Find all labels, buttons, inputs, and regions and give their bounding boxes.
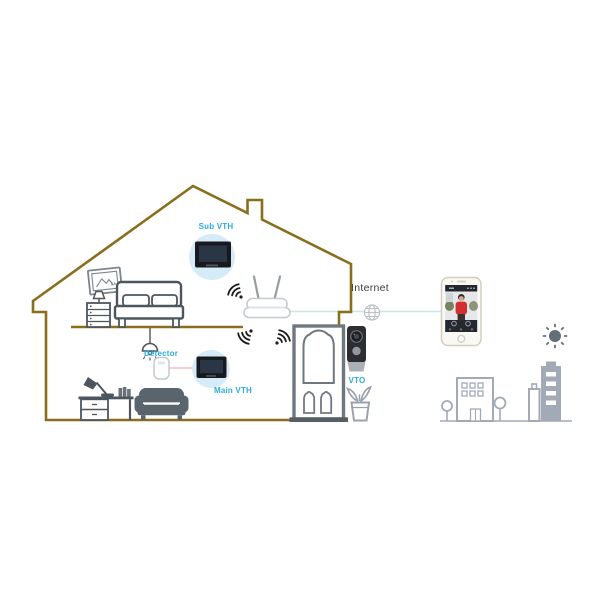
internet-label: Internet xyxy=(351,282,421,294)
door-icon xyxy=(290,326,349,422)
plant-icon xyxy=(348,387,371,421)
wifi-signal-icon xyxy=(238,329,252,343)
vto-label: VTO xyxy=(327,376,387,385)
detector-icon xyxy=(154,358,169,380)
bed-icon xyxy=(115,282,183,327)
sun-icon xyxy=(544,325,567,348)
desk-icon xyxy=(79,377,134,420)
vto-door-station-icon xyxy=(347,326,366,372)
main-vth-label: Main VTH xyxy=(203,386,263,395)
wifi-signal-icon xyxy=(228,284,242,298)
video-foliage xyxy=(469,301,478,311)
sofa-icon xyxy=(135,388,189,420)
nightstand-icon xyxy=(87,292,110,328)
smartphone-icon xyxy=(442,278,482,346)
city-buildings-icon xyxy=(440,362,572,422)
sub-vth-indoor-monitor-icon xyxy=(189,234,235,280)
sub-vth-label: Sub VTH xyxy=(186,222,246,231)
smart-home-diagram xyxy=(0,0,600,600)
main-vth-indoor-monitor-icon xyxy=(192,350,230,388)
detector-label: Detector xyxy=(131,349,191,358)
diagram-canvas: Sub VTH Detector Main VTH VTO Internet xyxy=(0,0,600,600)
video-foliage xyxy=(445,301,454,311)
wifi-signal-icon xyxy=(275,330,289,344)
wifi-router-icon xyxy=(244,277,290,318)
globe-icon xyxy=(365,305,380,320)
